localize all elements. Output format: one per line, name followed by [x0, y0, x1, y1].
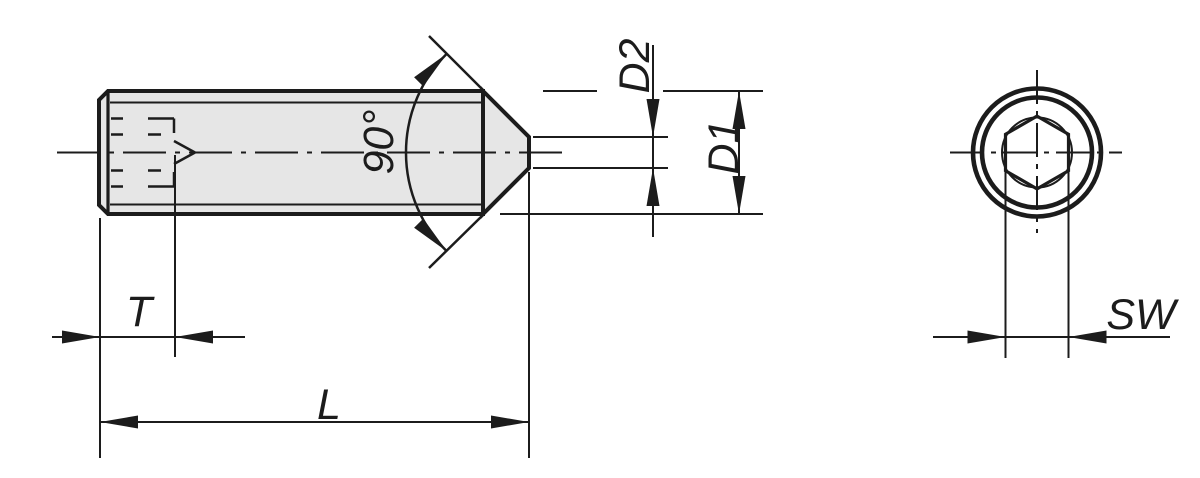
- t-arrow-right: [175, 331, 213, 344]
- technical-drawing-canvas: 90° D2 D1 T L: [0, 0, 1200, 478]
- cone-angle-label: 90°: [355, 109, 403, 174]
- side-view: [57, 91, 570, 214]
- hex-key-size-label: SW: [1106, 291, 1179, 339]
- d2-arrow-bottom: [647, 168, 660, 206]
- set-screw-technical-drawing: 90° D2 D1 T L: [0, 0, 1200, 478]
- l-arrow-left: [100, 416, 138, 429]
- l-arrow-right: [491, 416, 529, 429]
- d1-arrow-bottom: [733, 176, 746, 214]
- body-diameter-label: D1: [700, 120, 748, 175]
- sw-arrow-left: [968, 331, 1006, 344]
- end-view: [950, 70, 1122, 233]
- socket-depth-label: T: [126, 288, 155, 336]
- angle-arrow-bottom: [414, 219, 447, 252]
- sw-arrow-right: [1069, 331, 1107, 344]
- angle-arrow-top: [414, 54, 447, 87]
- d2-arrow-top: [647, 99, 660, 137]
- t-arrow-left: [62, 331, 100, 344]
- screw-length-label: L: [317, 381, 341, 429]
- hex-key-size-dimension: SW: [933, 172, 1179, 358]
- tip-diameter-label: D2: [611, 38, 659, 93]
